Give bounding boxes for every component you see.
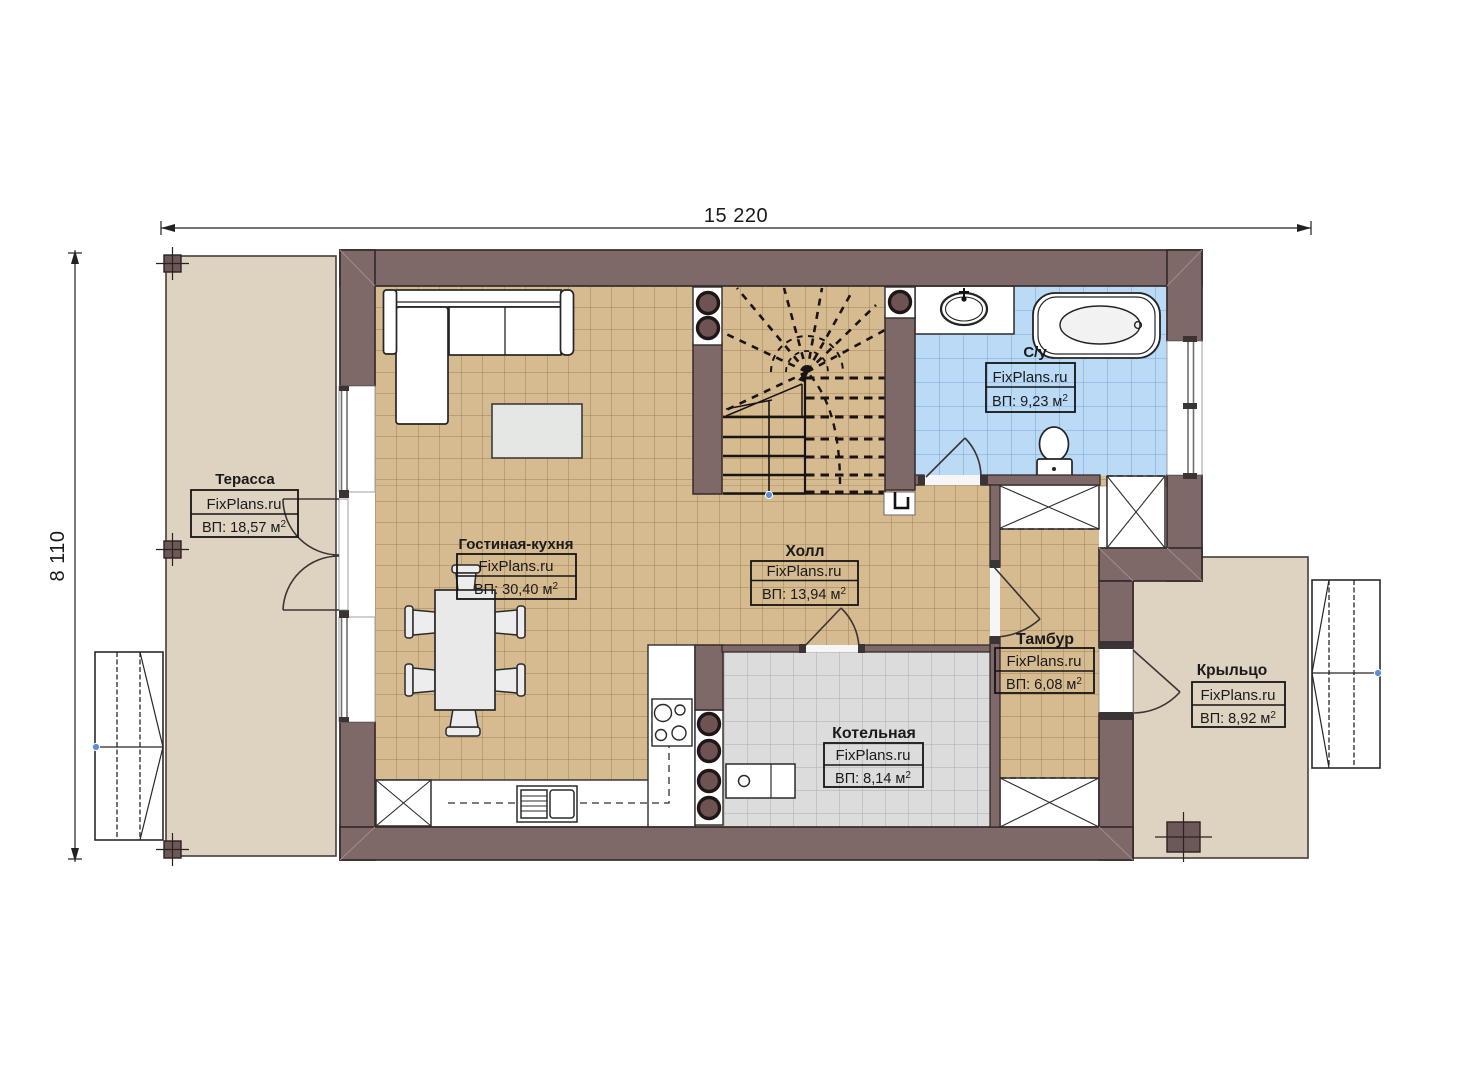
svg-text:ВП: 8,92 м2: ВП: 8,92 м2 [1200, 710, 1276, 727]
svg-text:Холл: Холл [786, 543, 825, 560]
svg-text:ВП: 13,94 м2: ВП: 13,94 м2 [762, 586, 846, 603]
svg-text:Терасса: Терасса [215, 471, 275, 488]
svg-text:ВП: 18,57 м2: ВП: 18,57 м2 [202, 519, 286, 536]
svg-text:15 220: 15 220 [704, 205, 768, 227]
svg-text:FixPlans.ru: FixPlans.ru [478, 558, 553, 575]
svg-text:FixPlans.ru: FixPlans.ru [206, 496, 281, 513]
svg-text:FixPlans.ru: FixPlans.ru [1200, 687, 1275, 704]
svg-text:Гостиная-кухня: Гостиная-кухня [459, 536, 574, 553]
svg-text:FixPlans.ru: FixPlans.ru [766, 563, 841, 580]
svg-text:Котельная: Котельная [832, 725, 916, 742]
svg-text:Крыльцо: Крыльцо [1197, 662, 1268, 679]
svg-text:8 110: 8 110 [47, 530, 69, 581]
svg-text:ВП: 8,14 м2: ВП: 8,14 м2 [835, 770, 911, 787]
svg-text:FixPlans.ru: FixPlans.ru [835, 747, 910, 764]
svg-text:Тамбур: Тамбур [1016, 631, 1074, 648]
svg-text:FixPlans.ru: FixPlans.ru [1006, 653, 1081, 670]
svg-text:ВП: 30,40 м2: ВП: 30,40 м2 [474, 581, 558, 598]
svg-text:FixPlans.ru: FixPlans.ru [992, 369, 1067, 386]
svg-text:ВП: 6,08 м2: ВП: 6,08 м2 [1006, 676, 1082, 693]
svg-text:ВП: 9,23 м2: ВП: 9,23 м2 [992, 393, 1068, 410]
svg-text:С/у: С/у [1023, 344, 1047, 361]
